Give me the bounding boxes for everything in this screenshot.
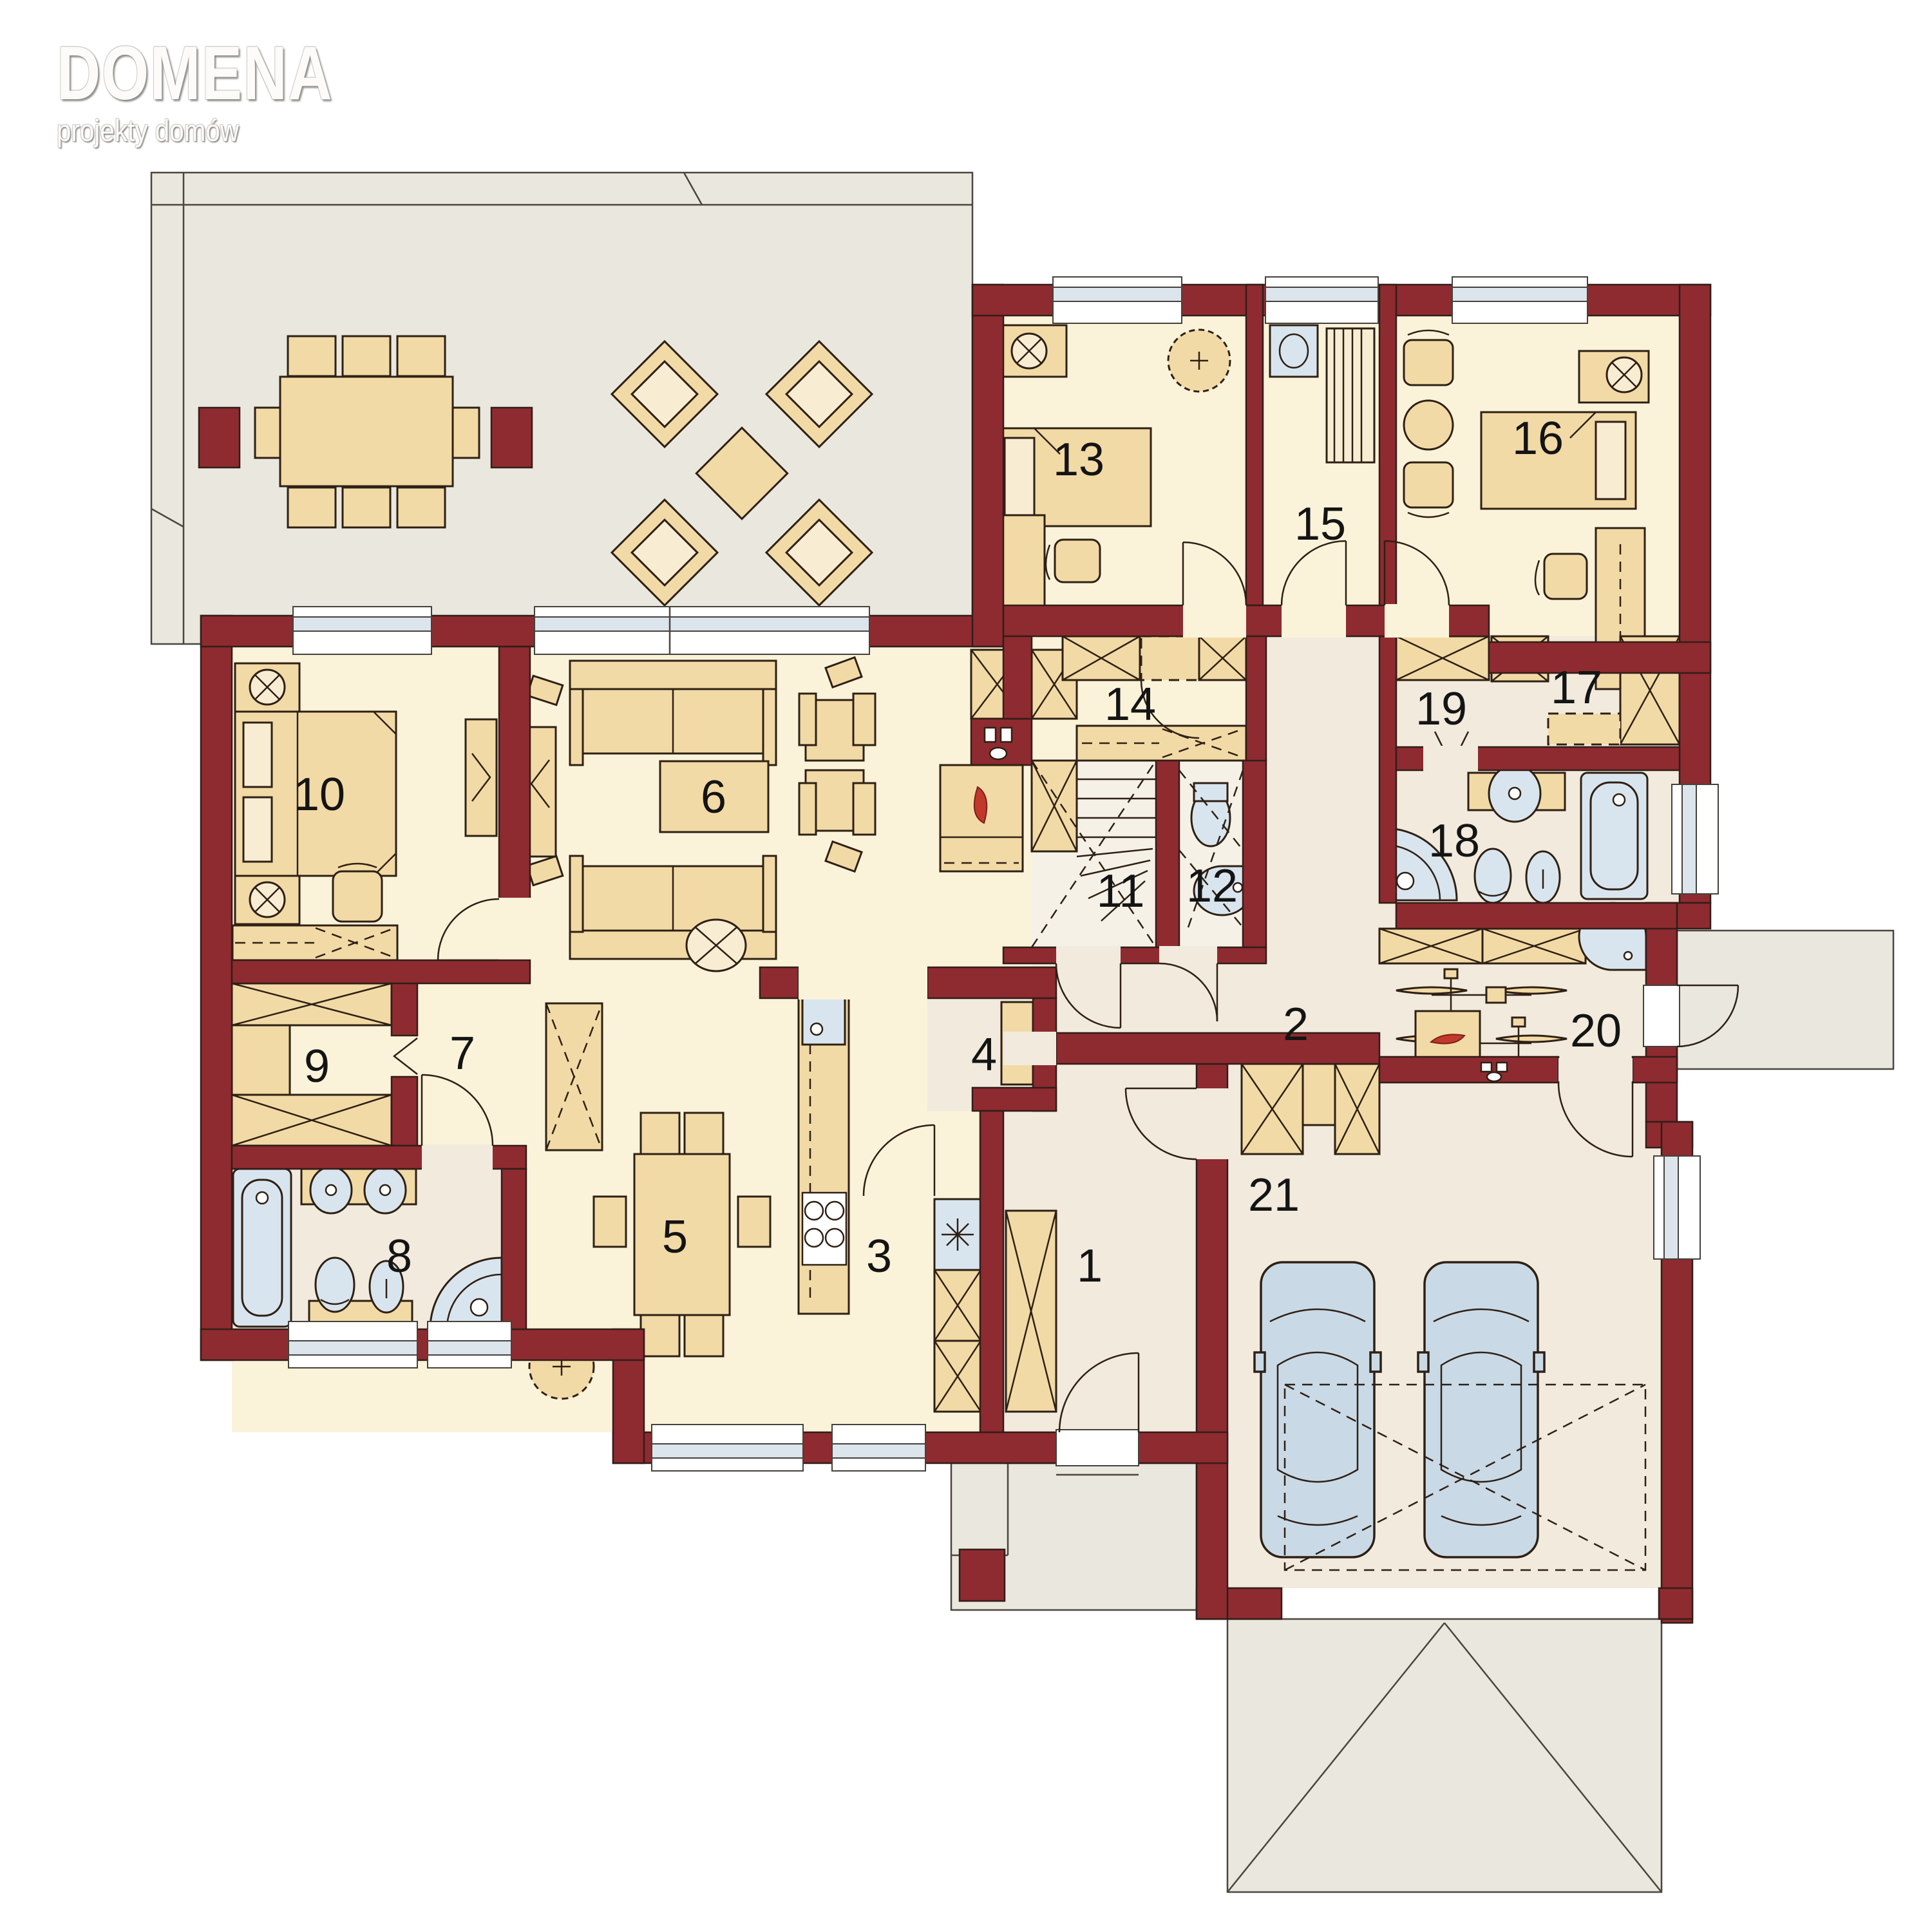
- entrance-porch: [951, 1463, 1197, 1610]
- window: [535, 607, 869, 654]
- room-label-7: 7: [450, 1028, 475, 1079]
- side-porch: [1677, 931, 1893, 1069]
- shelf: [1303, 1064, 1335, 1125]
- room-label-5: 5: [662, 1211, 688, 1263]
- room-label-18: 18: [1428, 815, 1480, 867]
- room-label-10: 10: [294, 769, 345, 820]
- floor-plan-drawing: 1 2 3 4 5 6 7 8 9 10 11 12 13 14 15 16 1…: [0, 0, 1932, 1932]
- room-label-13: 13: [1053, 434, 1104, 486]
- room-label-20: 20: [1570, 1005, 1622, 1057]
- window: [428, 1321, 511, 1368]
- pillow: [1005, 438, 1034, 516]
- chimney: [971, 719, 1032, 765]
- pillow: [243, 797, 272, 862]
- brand-title: DOMENA: [57, 35, 333, 111]
- toilet-tank: [1194, 783, 1227, 801]
- pillow: [1596, 422, 1625, 499]
- pillow: [243, 723, 272, 787]
- washing-machine: [1270, 325, 1318, 377]
- car: [1255, 1262, 1381, 1557]
- window: [1265, 277, 1378, 323]
- room-label-9: 9: [304, 1041, 330, 1092]
- wardrobe-dashed: [1548, 714, 1620, 744]
- room-label-15: 15: [1294, 498, 1346, 550]
- terrace-column: [199, 408, 240, 468]
- tv-cabinet: [466, 719, 497, 836]
- desk-chair: [333, 864, 382, 922]
- brand-subtitle: projekty domów: [57, 115, 354, 146]
- fireplace: [940, 765, 1023, 871]
- flue-icon: [1487, 1072, 1501, 1081]
- room-label-16: 16: [1512, 413, 1564, 464]
- hall-1-furniture: [1006, 1211, 1056, 1412]
- porch-column: [960, 1549, 1005, 1601]
- room-label-2: 2: [1283, 999, 1309, 1050]
- driveway-roof: [1227, 1619, 1662, 1892]
- room-label-1: 1: [1077, 1240, 1103, 1292]
- room-label-12: 12: [1186, 860, 1238, 912]
- window: [293, 607, 431, 654]
- room-label-19: 19: [1416, 683, 1467, 735]
- floor-plan-page: DOMENA projekty domów: [0, 0, 1932, 1932]
- window: [1672, 784, 1718, 894]
- flue-icon: [1497, 1063, 1507, 1072]
- terrace-column: [491, 408, 532, 468]
- window: [652, 1425, 803, 1471]
- flue-icon: [1481, 1063, 1492, 1072]
- terrace-table: [280, 377, 453, 486]
- window: [1452, 277, 1587, 323]
- armchair: [799, 694, 875, 761]
- room-label-3: 3: [866, 1231, 892, 1282]
- room-label-14: 14: [1104, 679, 1156, 730]
- terrace: [151, 173, 972, 644]
- room-label-17: 17: [1551, 662, 1602, 714]
- room-label-21: 21: [1248, 1170, 1300, 1221]
- sofa-back: [570, 661, 776, 689]
- window: [1053, 277, 1182, 323]
- room-label-8: 8: [386, 1231, 412, 1282]
- kitchen-sink: [802, 997, 845, 1045]
- window: [832, 1425, 925, 1471]
- desk: [999, 515, 1045, 607]
- window: [289, 1321, 417, 1368]
- round-table: [1404, 401, 1453, 450]
- room-label-4: 4: [971, 1029, 997, 1081]
- room-label-11: 11: [1097, 866, 1145, 917]
- wardrobe-dashed: [1141, 636, 1199, 680]
- armchair: [799, 770, 875, 835]
- car: [1418, 1262, 1544, 1557]
- room-label-6: 6: [701, 772, 726, 823]
- brand-logo: DOMENA projekty domów: [57, 35, 402, 146]
- window: [1654, 1156, 1700, 1259]
- terrace-dining-set: [255, 336, 479, 527]
- toilet: [1475, 849, 1511, 903]
